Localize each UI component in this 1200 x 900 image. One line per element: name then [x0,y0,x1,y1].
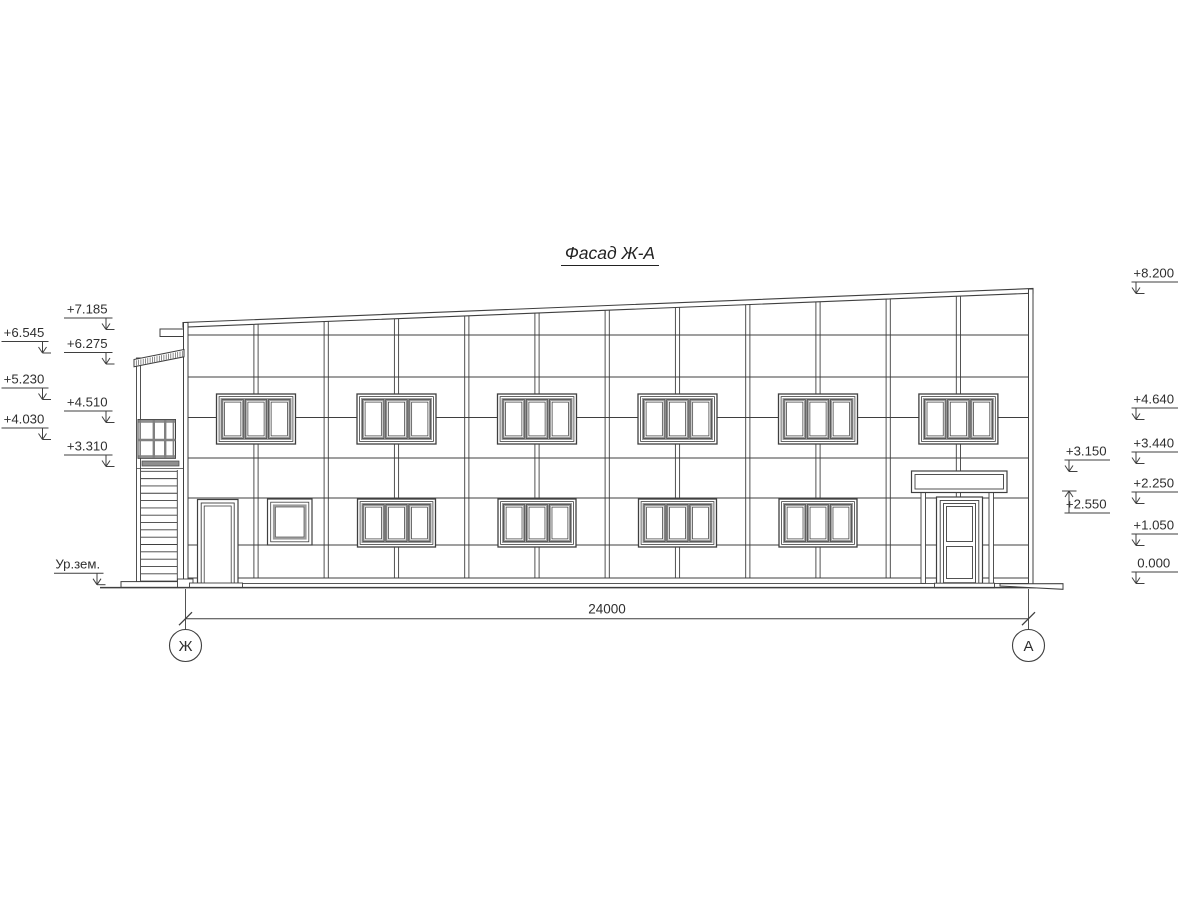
window-sash [386,400,407,439]
upper-window [357,394,436,444]
elevation-arrow-barb [1136,540,1140,546]
elevation-arrow-barb [39,434,43,440]
lower-window [358,499,436,547]
entrance-right [912,471,1008,583]
window-sash [269,400,290,439]
window-sash [690,400,711,439]
axis-bubble-zh: Ж [170,630,202,662]
elevation-arrow-barb [1136,458,1140,464]
window-sash [549,505,570,542]
canopy-post-right [989,493,994,584]
facade-drawing: Фасад Ж-А 24000 Ж А +7.185+6.275+4.510+3… [0,0,1200,900]
upper-window [498,394,577,444]
elevation-mark: +2.250 [1132,476,1179,504]
panel-joint-lines [188,335,1029,545]
window-sash [363,400,384,439]
elevation-arrow-barb [97,579,101,585]
elevation-label: Ур.зем. [55,557,100,572]
elevation-arrow-barb [102,417,106,423]
page-title: Фасад Ж-А [565,243,655,263]
canopy-post-left [921,493,926,584]
window-sash [807,400,828,439]
window-sash [409,400,430,439]
elevation-arrow-barb [106,461,110,467]
elevation-arrow-barb [1132,540,1136,546]
dimension-label: 24000 [588,602,626,617]
window-sash [222,400,243,439]
elevation-arrow-barb [1132,458,1136,464]
elevation-label: +8.200 [1133,266,1174,281]
elevation-arrow-barb [1132,414,1136,420]
stair-tower [121,350,184,588]
elevation-arrow-barb [1132,578,1136,584]
elevation-arrow-barb [106,358,110,364]
stair-treads [141,471,177,581]
elevation-mark: +4.510 [64,395,115,423]
elevation-arrow-barb [106,417,110,423]
elevation-label: +4.640 [1133,392,1174,407]
axis-label-a: А [1023,638,1033,655]
elevation-mark-canopy-top: +3.150 [1065,444,1111,472]
elevation-label: +2.250 [1133,476,1174,491]
window-sash [644,505,665,542]
entrance-door-right [937,497,983,583]
square-window [268,499,313,545]
elevation-mark: +4.640 [1132,392,1179,420]
ground-wedge-right [1000,584,1063,590]
upper-window [217,394,296,444]
window-sash [690,505,711,542]
tower-left-wall [137,358,141,582]
wall-left-edge [184,323,189,585]
elevation-arrow-barb [93,579,97,585]
elevation-label: +6.275 [67,336,108,351]
window-sash [245,400,266,439]
elevation-arrow-barb [1136,414,1140,420]
tower-sill-band [142,461,179,466]
stair-footing [121,582,180,588]
elevation-arrow-barb [39,394,43,400]
elevation-mark: +3.310 [64,439,115,467]
elevation-arrow-barb [102,461,106,467]
lower-window [639,499,717,547]
elevation-arrow-barb [1136,288,1140,294]
elevation-label: +2.550 [1066,497,1107,512]
axis-label-zh: Ж [179,638,193,655]
window-sash [784,400,805,439]
elevation-arrow-barb [1065,466,1069,472]
elevation-arrow-barb [1136,578,1140,584]
window-sash [830,505,851,542]
elevation-label: +6.545 [4,325,45,340]
elevation-label: +3.150 [1066,444,1107,459]
window-sash [807,505,828,542]
window-sash [409,505,430,542]
window-sash [924,400,945,439]
elevation-marks: +7.185+6.275+4.510+3.310+6.545+5.230+4.0… [2,266,1179,585]
windows [217,394,998,547]
window-sash [971,400,992,439]
window-sash [948,400,969,439]
elevation-label: +5.230 [4,372,45,387]
elevation-mark: +3.440 [1132,436,1179,464]
upper-window [638,394,717,444]
elevation-mark: +5.230 [2,372,52,400]
elevation-arrow-barb [1136,498,1140,504]
elevation-arrow-barb [39,347,43,353]
lower-window [498,499,576,547]
ground-level-mark: Ур.зем. [54,557,106,585]
lower-window [779,499,857,547]
window-sash [386,505,407,542]
window-sash [363,505,384,542]
window-sash [503,400,524,439]
elevation-arrow-barb [43,347,47,353]
elevation-arrow-barb [1132,498,1136,504]
elevation-arrow-barb [43,394,47,400]
elevation-arrow-barb [102,358,106,364]
window-sash [526,505,547,542]
elevation-mark: +6.545 [2,325,52,353]
elevation-label: +4.030 [4,412,45,427]
elevation-arrow-barb [1069,466,1073,472]
elevation-arrow-barb [43,434,47,440]
elevation-label: +1.050 [1133,518,1174,533]
window-sash [667,505,688,542]
elevation-mark: +6.275 [64,336,115,364]
elevation-mark-canopy-bottom: +2.550 [1062,491,1110,513]
window-sash [504,505,525,542]
elevation-mark: +1.050 [1132,518,1179,546]
elevation-label: 0.000 [1137,556,1170,571]
elevation-arrow-barb [1132,288,1136,294]
elevation-arrow-barb [102,324,106,330]
dimension-line: 24000 [179,589,1035,630]
entrance-door-left [198,500,239,584]
roof-beam-left [160,329,184,337]
window-sash [550,400,571,439]
drawing-sheet: Фасад Ж-А 24000 Ж А +7.185+6.275+4.510+3… [0,0,1200,900]
elevation-mark: +4.030 [2,412,52,440]
window-sash [644,400,665,439]
window-sash [526,400,547,439]
elevation-label: +3.310 [67,439,108,454]
upper-window [779,394,858,444]
window-sash [785,505,806,542]
axis-bubble-a: А [1013,630,1045,662]
elevation-label: +4.510 [67,395,108,410]
roof-parapet [183,289,1033,328]
upper-window [919,394,998,444]
elevation-mark: 0.000 [1132,556,1179,584]
elevation-mark: +8.200 [1132,266,1179,294]
wall-right-edge [1029,289,1034,585]
window-sash [667,400,688,439]
elevation-mark: +7.185 [64,302,115,330]
elevation-arrow-barb [106,324,110,330]
window-sash [831,400,852,439]
elevation-label: +3.440 [1133,436,1174,451]
elevation-label: +7.185 [67,302,108,317]
tower-window [138,420,176,459]
building-facade [100,289,1063,590]
